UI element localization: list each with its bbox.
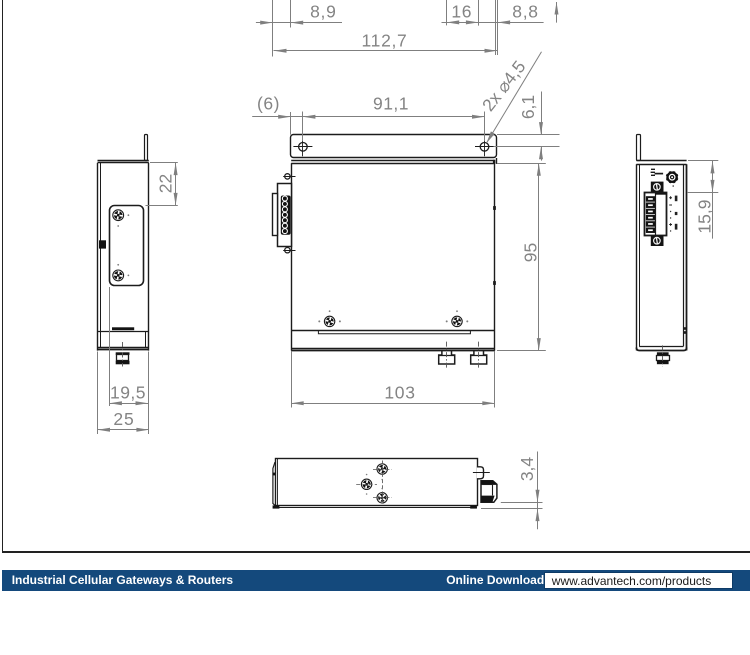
svg-text:112,7: 112,7 (362, 30, 408, 50)
svg-text:3,4: 3,4 (517, 457, 537, 482)
svg-text:15,9: 15,9 (695, 200, 715, 234)
svg-text:103: 103 (384, 383, 415, 403)
svg-text:22: 22 (155, 174, 175, 193)
svg-text:(6): (6) (257, 94, 280, 114)
svg-text:91,1: 91,1 (373, 94, 409, 114)
svg-text:16: 16 (451, 1, 472, 21)
svg-text:8,8: 8,8 (512, 1, 538, 21)
svg-text:8,9: 8,9 (310, 2, 336, 22)
svg-text:25: 25 (113, 409, 134, 429)
svg-text:19,5: 19,5 (110, 382, 146, 402)
svg-text:95: 95 (520, 243, 540, 262)
svg-text:6,1: 6,1 (518, 95, 538, 119)
